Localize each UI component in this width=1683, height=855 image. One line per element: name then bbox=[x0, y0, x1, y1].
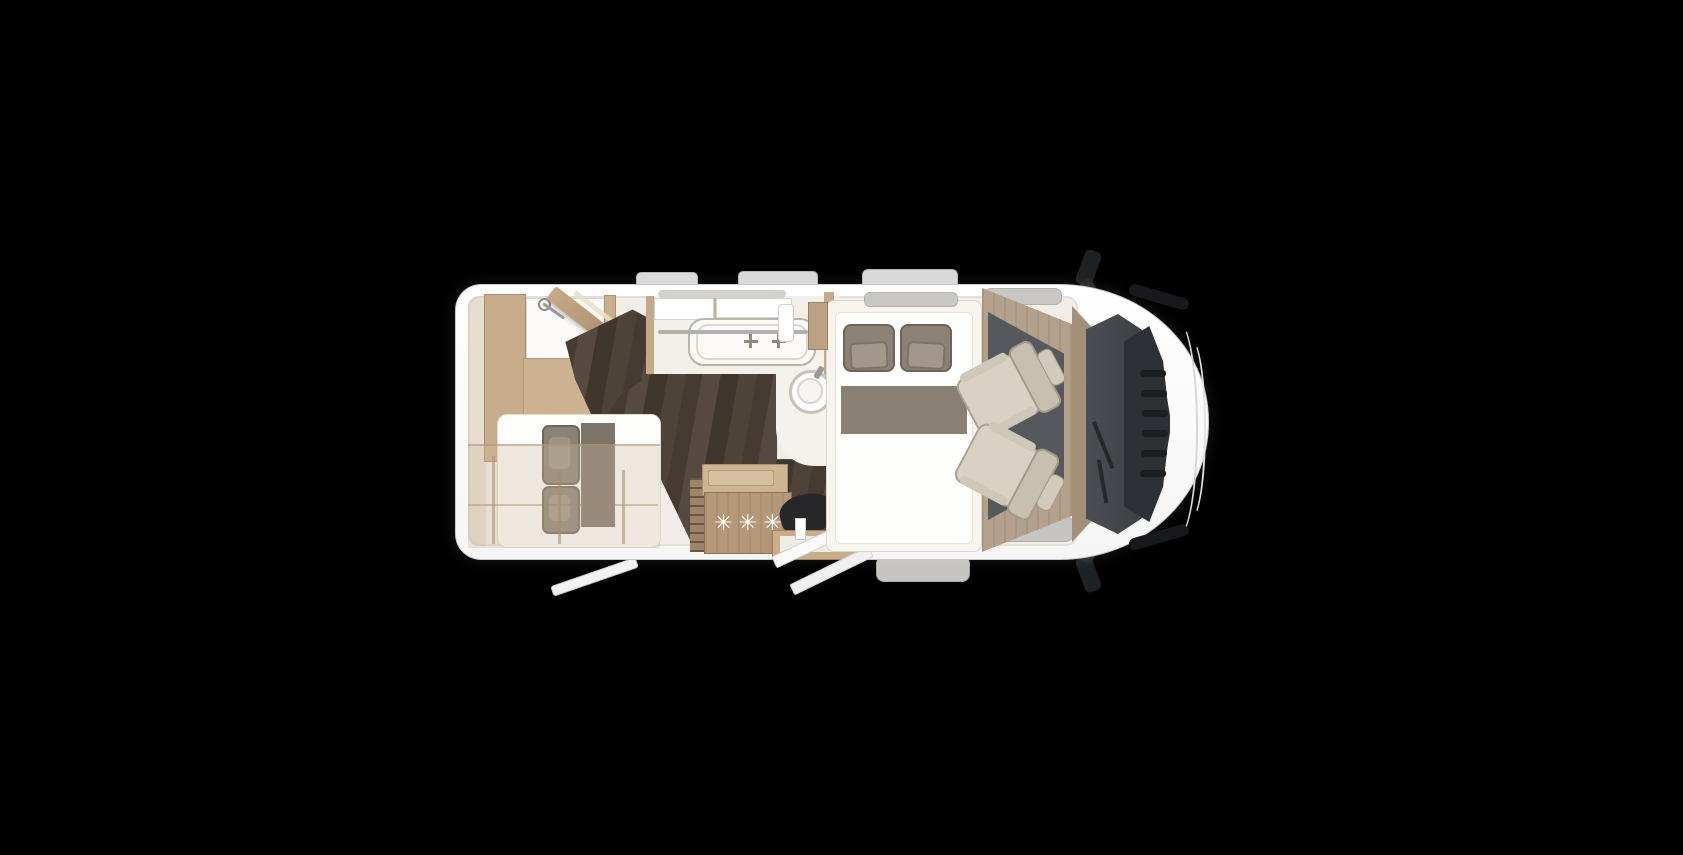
front-bed-blanket bbox=[841, 386, 967, 434]
garage-shelf-line bbox=[468, 504, 658, 506]
window-bathroom bbox=[658, 290, 786, 298]
support-strut bbox=[550, 557, 639, 597]
bathroom-shelf bbox=[778, 304, 794, 342]
bathroom-cabinet-1 bbox=[654, 298, 714, 320]
refrigerator-lid bbox=[708, 470, 774, 486]
washbasin-inner bbox=[797, 378, 823, 404]
bedside-cabinet bbox=[808, 302, 828, 350]
front-bed-pillow-left-top bbox=[849, 341, 888, 370]
garage-divider-3 bbox=[622, 470, 625, 544]
hood-seam-2 bbox=[1176, 338, 1206, 520]
garage-divider-1 bbox=[492, 456, 495, 544]
garage-storage-overlay bbox=[468, 444, 660, 548]
bathroom-wall-left bbox=[646, 296, 654, 374]
garage-divider-2 bbox=[558, 470, 561, 544]
front-bed-pillow-right-top bbox=[906, 341, 945, 370]
window-bed bbox=[864, 292, 958, 307]
tap-icon-1-v bbox=[749, 334, 752, 348]
floorplan-canvas: ✳✳✳ bbox=[0, 0, 1683, 855]
entry-door-post bbox=[795, 518, 806, 540]
